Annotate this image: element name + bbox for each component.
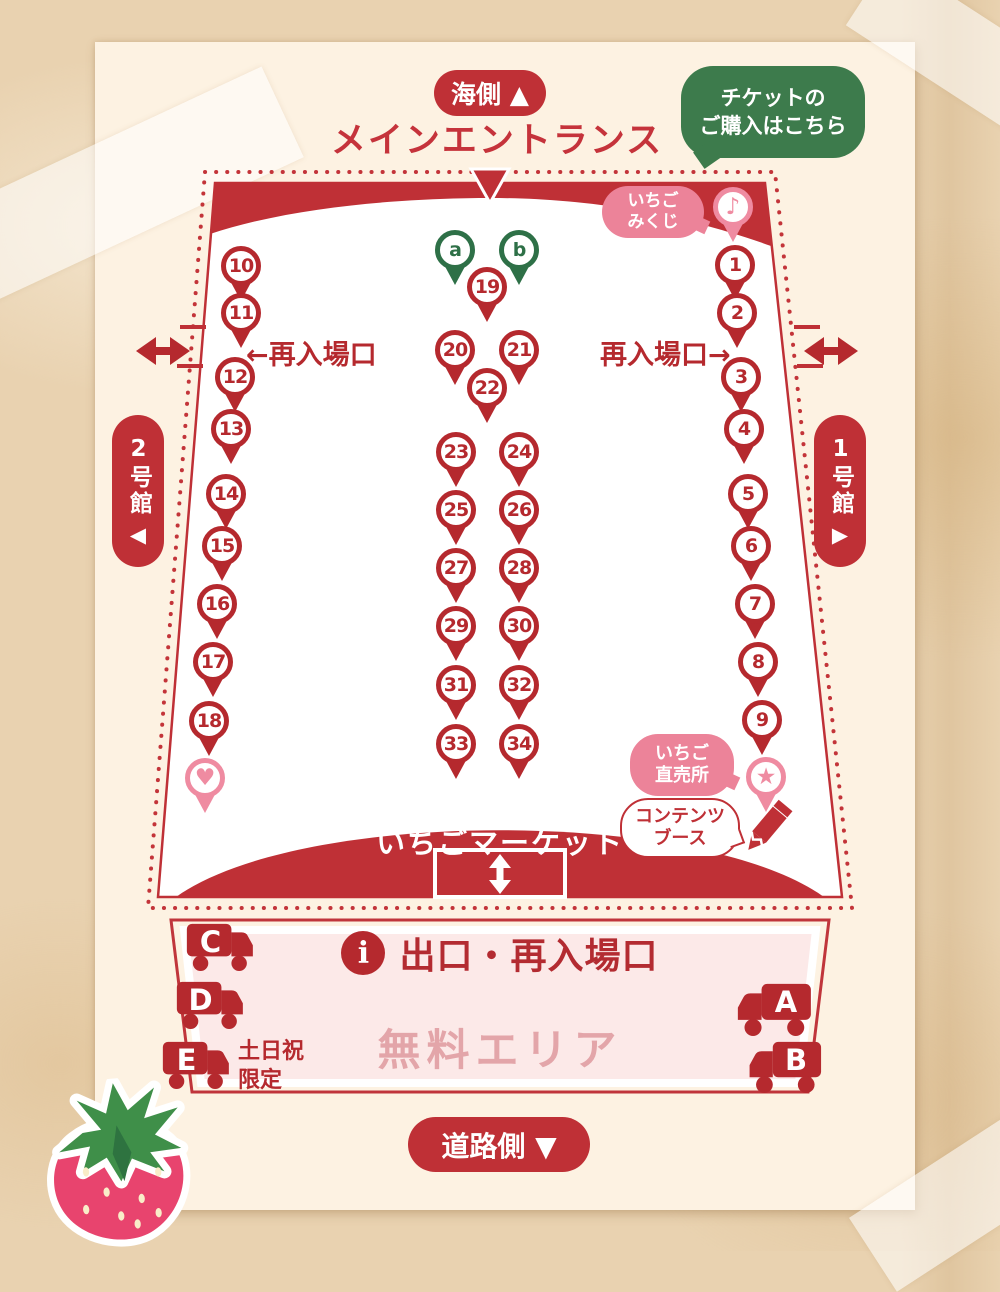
- strawberry-sticker-icon: [21, 1070, 225, 1258]
- poster-sheet: [95, 42, 915, 1210]
